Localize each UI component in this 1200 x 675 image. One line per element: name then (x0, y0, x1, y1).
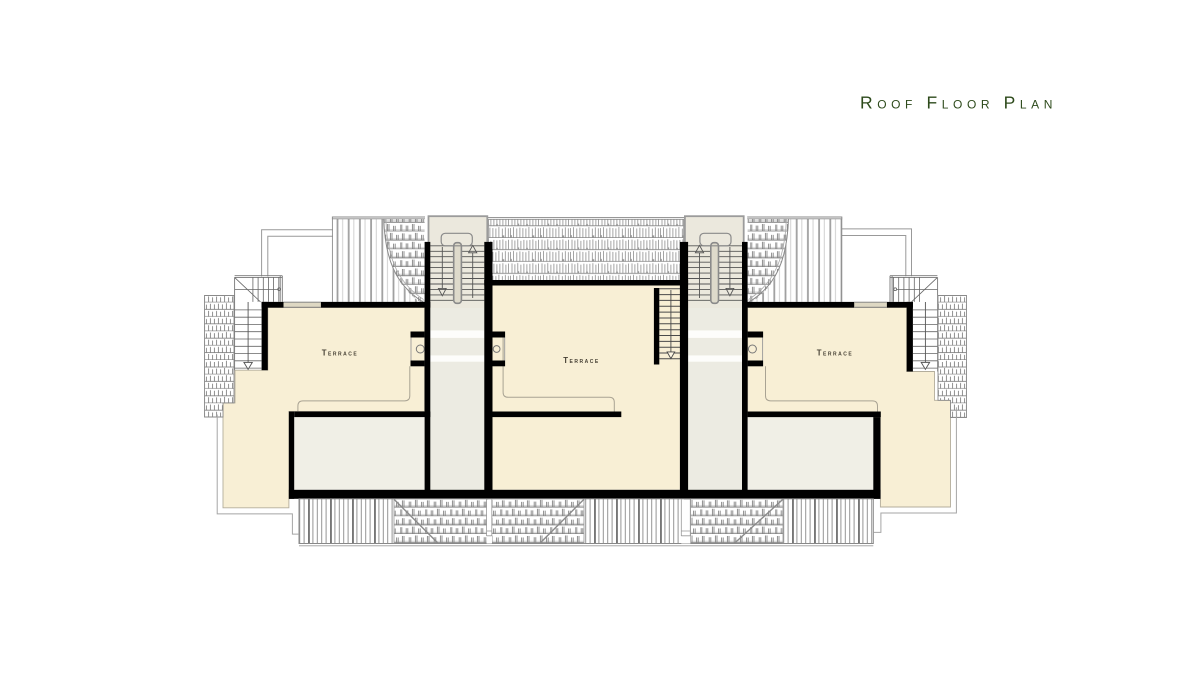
svg-text:Terrace: Terrace (563, 356, 599, 365)
svg-text:Roof Floor Plan: Roof Floor Plan (860, 93, 1057, 113)
svg-text:Terrace: Terrace (322, 348, 358, 357)
svg-text:Terrace: Terrace (817, 348, 853, 357)
